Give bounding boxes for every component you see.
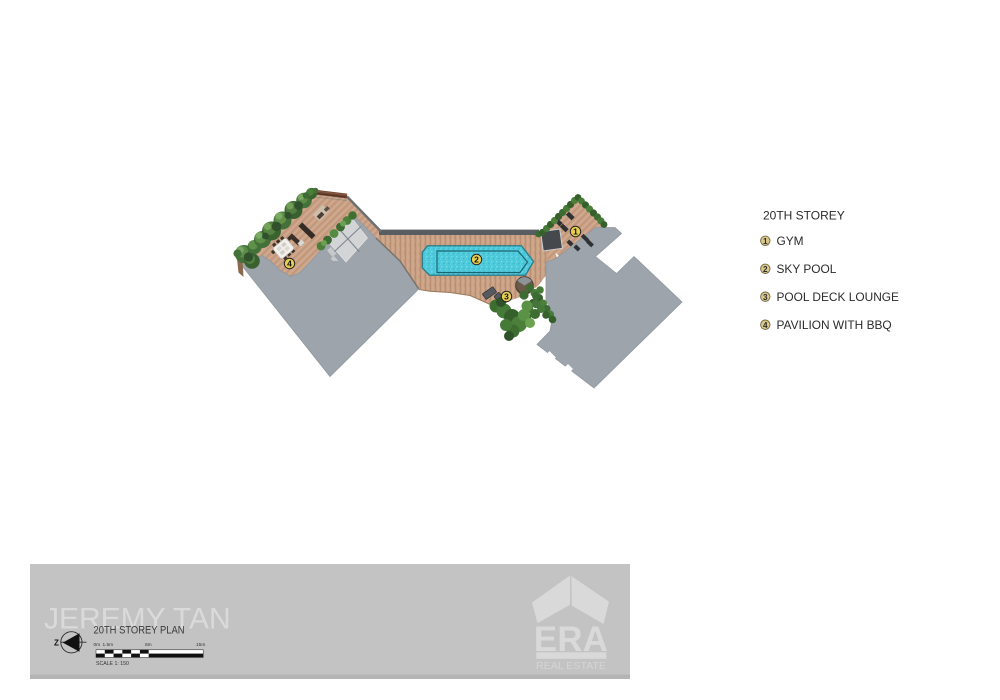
svg-text:POOL DECK LOUNGE: POOL DECK LOUNGE xyxy=(777,290,900,304)
svg-text:15m: 15m xyxy=(196,642,205,648)
svg-text:Z: Z xyxy=(54,639,59,648)
svg-text:8m: 8m xyxy=(145,642,152,648)
svg-text:SKY POOL: SKY POOL xyxy=(777,262,837,276)
svg-text:20TH STOREY PLAN: 20TH STOREY PLAN xyxy=(94,625,185,637)
svg-text:20TH STOREY: 20TH STOREY xyxy=(763,208,845,222)
svg-text:1: 1 xyxy=(763,237,768,246)
svg-text:4: 4 xyxy=(763,321,768,330)
svg-text:GYM: GYM xyxy=(777,234,804,248)
svg-text:1: 1 xyxy=(573,227,578,237)
svg-text:REAL ESTATE: REAL ESTATE xyxy=(536,661,606,672)
svg-text:2: 2 xyxy=(474,255,479,265)
svg-text:4: 4 xyxy=(287,259,292,269)
svg-text:PAVILION WITH BBQ: PAVILION WITH BBQ xyxy=(777,318,892,332)
svg-text:3: 3 xyxy=(504,292,509,302)
svg-text:0m: 0m xyxy=(94,642,101,648)
svg-text:2: 2 xyxy=(763,265,768,274)
svg-text:3: 3 xyxy=(763,293,768,302)
svg-text:1.5m: 1.5m xyxy=(103,642,114,648)
svg-text:SCALE 1: 150: SCALE 1: 150 xyxy=(96,661,129,667)
